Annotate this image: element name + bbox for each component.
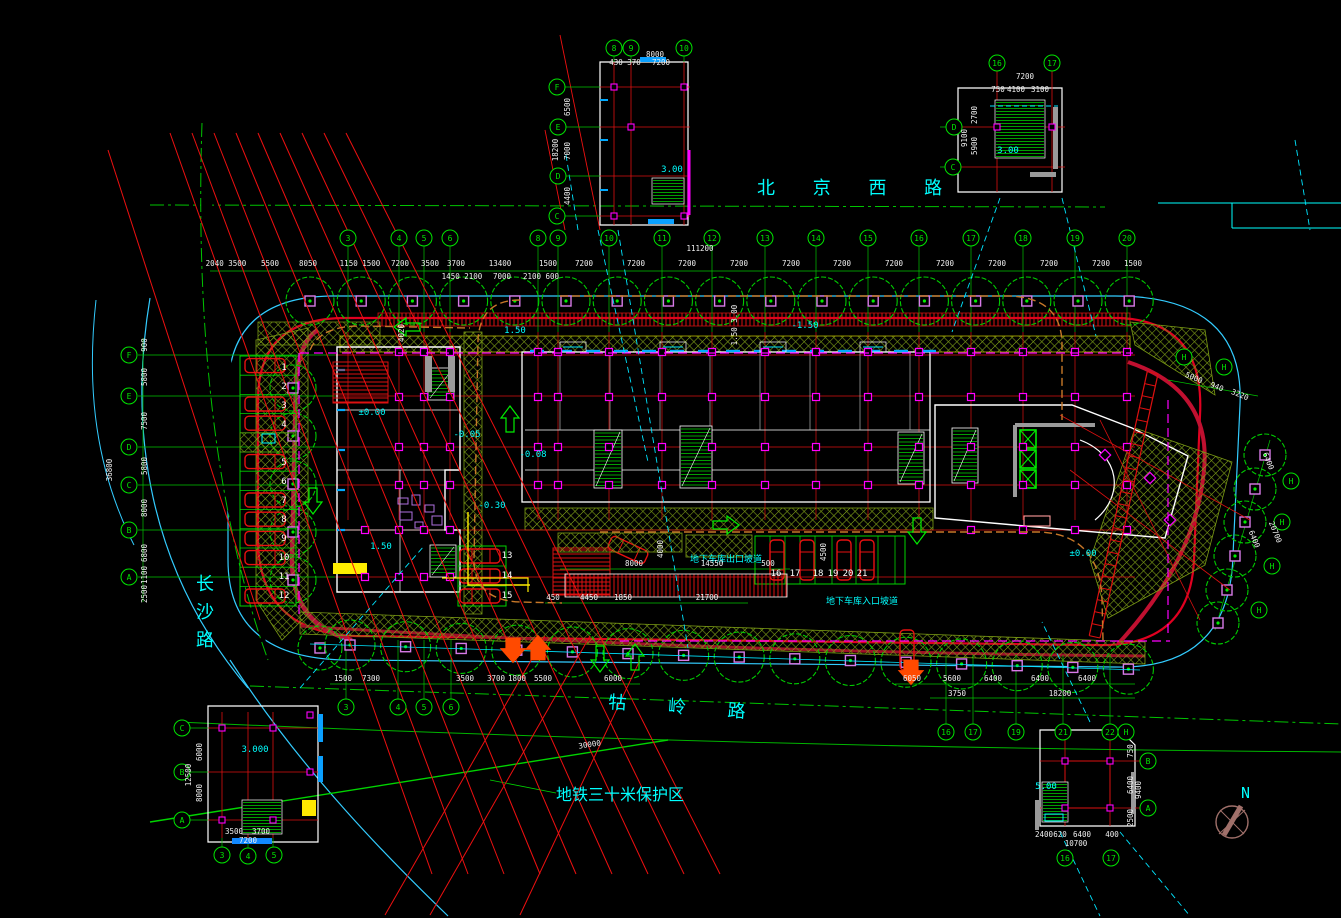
detail-column-square [307, 769, 313, 775]
dimension-text: 430 370 [609, 58, 641, 67]
grid-bubble-label: 22 [1105, 728, 1115, 737]
column-square [709, 394, 716, 401]
column-square [606, 349, 613, 356]
grid-bubble-label: H [1257, 606, 1262, 615]
column-square [968, 444, 975, 451]
dimension-text: 12500 [184, 763, 193, 786]
grid-bubble-label: 6 [448, 234, 453, 243]
column-square [659, 444, 666, 451]
grid-bubble-label: 11 [657, 234, 667, 243]
parking-number: 12 [279, 591, 290, 601]
furniture [425, 505, 434, 512]
grid-bubble-label: 5 [272, 851, 277, 860]
garage-entry-ramp-label: 地下车库入口坡道 [826, 595, 898, 607]
dimension-text: 7500 [140, 411, 149, 430]
detail-column-square [1107, 758, 1113, 764]
grid-bubble: B [1140, 753, 1156, 769]
dimension-text: 7200 [627, 259, 646, 268]
parking-number: 11 [279, 572, 290, 582]
column-square [659, 482, 666, 489]
grid-bubble-label: 16 [941, 728, 951, 737]
grid-bubble-label: H [1124, 728, 1129, 737]
parking-number: 7 [281, 496, 286, 506]
column-square [813, 444, 820, 451]
detail-column-square [1049, 124, 1055, 130]
grid-bubble-label: C [951, 163, 956, 172]
elevation-text: -1.50 [791, 321, 818, 331]
rect [648, 219, 674, 224]
column-square [1124, 444, 1131, 451]
dimension-text: 6800 [140, 543, 149, 562]
elevation-text: -0.05 [453, 430, 480, 440]
stair-core [898, 432, 924, 484]
dimension-text: 900 [140, 338, 149, 352]
grid-bubble: C [945, 159, 961, 175]
parking-number: 17 [790, 569, 801, 579]
parking-number: 13 [502, 551, 513, 561]
furniture [432, 516, 442, 525]
grid-bubble: 3 [340, 230, 356, 246]
dimension-text: 7200 [730, 259, 749, 268]
column-square [1072, 482, 1079, 489]
column-square [709, 482, 716, 489]
site-plan-svg: 北 京 西 路 长沙路 牯 岭 路 地铁三十米保护区 地下车库出口坡道 地下车库… [0, 0, 1341, 918]
parking-number: 16 [771, 569, 782, 579]
column-square [916, 349, 923, 356]
grid-bubble: H [1176, 349, 1192, 365]
stair-core [680, 426, 712, 488]
path [250, 686, 1341, 724]
dimension-text: 6400 [984, 674, 1003, 683]
grid-bubble: 6 [443, 699, 459, 715]
detail-column-square [681, 84, 687, 90]
road-name-west: 长沙路 [196, 574, 214, 651]
dimension-text: 620 [1053, 830, 1067, 839]
parking-number: 18 [813, 569, 824, 579]
hatch-court-strip [464, 332, 482, 614]
dimension-text: 7200 [1040, 259, 1059, 268]
grid-bubble: H [1283, 473, 1299, 489]
grid-bubble: H [1251, 602, 1267, 618]
grid-bubble-label: 5 [422, 234, 427, 243]
dimension-text: 6000 [195, 742, 204, 761]
grid-bubble: H [1216, 359, 1232, 375]
dimension-text: 5600 [943, 674, 962, 683]
slab-building-outline [522, 352, 930, 502]
grid-bubble: B [121, 522, 137, 538]
cad-drawing-canvas: 北 京 西 路 长沙路 牯 岭 路 地铁三十米保护区 地下车库出口坡道 地下车库… [0, 0, 1341, 918]
road-name-north: 北 京 西 路 [757, 178, 958, 199]
tree-center [318, 646, 321, 649]
dimension-text: 36800 [105, 458, 114, 481]
dimension-text: 8050 [299, 259, 318, 268]
ladder-rung [1089, 636, 1100, 638]
column-grey [448, 356, 455, 392]
dimension-text: 6400 [1078, 674, 1097, 683]
column-grey [425, 356, 432, 392]
dimension-text: 7200 [936, 259, 955, 268]
dimension-text: 1850 [614, 593, 633, 602]
column-square [1072, 349, 1079, 356]
column-square [535, 349, 542, 356]
column-square [421, 349, 428, 356]
dimension-text: 7200 [678, 259, 697, 268]
grid-bubble: 11 [654, 230, 670, 246]
dimension-text: 5800 [140, 367, 149, 386]
detail-column-square [270, 725, 276, 731]
furniture [400, 512, 412, 520]
pink-car [1024, 516, 1050, 526]
tree-center [872, 299, 875, 302]
detail-column-square [1062, 805, 1068, 811]
tree-center [1127, 668, 1130, 671]
tree [1206, 569, 1248, 611]
dimension-text: 1500 [539, 259, 558, 268]
parking-number: 21 [857, 569, 868, 579]
tree-center [462, 299, 465, 302]
stair-core [952, 428, 978, 483]
grid-bubble: 8 [606, 40, 622, 56]
column-square [421, 527, 428, 534]
tree-center [616, 299, 619, 302]
parking-number: 3 [281, 401, 286, 411]
rect [318, 756, 323, 782]
dimension-text: 9400 [1134, 780, 1143, 799]
column-square [865, 482, 872, 489]
grid-bubble-label: 17 [966, 234, 976, 243]
column-square [762, 349, 769, 356]
subway-zone-label: 地铁三十米保护区 [556, 785, 684, 804]
parking-number: 15 [502, 591, 513, 601]
grid-bubble: C [174, 720, 190, 736]
tree-center [1253, 487, 1256, 490]
dimension-text: 750 [1126, 744, 1135, 758]
grid-bubble-label: 12 [707, 234, 717, 243]
grid-bubble: E [550, 119, 566, 135]
dimension-text: 3700 [487, 674, 506, 683]
tree-center [1243, 520, 1246, 523]
grid-bubble-label: H [1222, 363, 1227, 372]
elevation-text: 1.50 [370, 542, 392, 552]
parking-number: 6 [281, 477, 286, 487]
grid-bubble-label: 10 [604, 234, 614, 243]
column-square [1020, 394, 1027, 401]
column-square [968, 394, 975, 401]
grid-bubble-label: C [555, 212, 560, 221]
tree-center [360, 299, 363, 302]
grid-bubble: 18 [1015, 230, 1031, 246]
stall-hatched [240, 433, 296, 452]
column-square [421, 574, 428, 581]
grid-bubble-label: H [1289, 477, 1294, 486]
grid-bubble-label: 13 [760, 234, 770, 243]
direction-arrow [591, 646, 609, 672]
grid-bubble: 5 [416, 699, 432, 715]
dimension-text: 7200 [1092, 259, 1111, 268]
elevation-text: ±0.00 [358, 408, 385, 418]
grid-bubble: 6 [442, 230, 458, 246]
grid-bubble: C [549, 208, 565, 224]
elevation-text: -0.30 [478, 501, 505, 511]
stair-core [594, 430, 622, 488]
grid-bubble: D [550, 168, 566, 184]
dimension-text: 10700 [1065, 839, 1088, 848]
column-square [362, 574, 369, 581]
parking-number: 14 [502, 571, 513, 581]
rect [1035, 800, 1039, 830]
dimension-text: 6400 [1073, 830, 1092, 839]
dimension-text: 9100 [960, 128, 969, 147]
dimension-text: 2400 [1035, 830, 1054, 839]
grid-bubble-label: 9 [556, 234, 561, 243]
elevation-text: 5.00 [1035, 782, 1057, 792]
grid-bubble-label: H [1270, 562, 1275, 571]
dimension-text: 7200 [1016, 72, 1035, 81]
grid-bubble: A [1140, 800, 1156, 816]
north-arrow-needle [1224, 806, 1241, 835]
tree-center [1128, 299, 1131, 302]
grid-bubble-label: D [127, 443, 132, 452]
layer-north-arrow [1216, 806, 1248, 838]
north-curb-rungs [378, 313, 1130, 326]
grid-bubble: 17 [1103, 850, 1119, 866]
column-square [916, 444, 923, 451]
column-square [916, 482, 923, 489]
column-square [968, 349, 975, 356]
dimension-text: 7200 [988, 259, 1007, 268]
column-square [1124, 349, 1131, 356]
detail-column-square [219, 817, 225, 823]
elevation-text: 3.000 [241, 745, 268, 755]
grid-bubble-label: 20 [1122, 234, 1132, 243]
dimension-text: 5800 [140, 456, 149, 475]
ladder-rung [1145, 384, 1156, 386]
detail-column-square [219, 725, 225, 731]
dimension-text: 5500 [261, 259, 280, 268]
detail-column-square [270, 817, 276, 823]
grid-bubble-label: 19 [1070, 234, 1080, 243]
grid-bubble: 19 [1067, 230, 1083, 246]
stair-core [430, 545, 456, 577]
dimension-text: 4000 [656, 539, 665, 558]
column-square [447, 349, 454, 356]
column-square [968, 482, 975, 489]
dimension-text: 7200 [575, 259, 594, 268]
dimension-text: 1150 1500 [340, 259, 381, 268]
column-square [1124, 394, 1131, 401]
grid-bubble: E [121, 388, 137, 404]
subway-line [108, 150, 260, 620]
dimension-text: 7200 [391, 259, 410, 268]
grid-bubble: D [121, 439, 137, 455]
grid-bubble-label: 5 [422, 703, 427, 712]
ladder-rung [1137, 420, 1148, 422]
dimension-text: 8000 [140, 498, 149, 517]
dimension-text: 3500 [421, 259, 440, 268]
southwest-curb [230, 660, 448, 916]
dimension-text: 13400 [489, 259, 512, 268]
column-square [606, 482, 613, 489]
tree [1197, 602, 1239, 644]
dimension-text: 3700 [447, 259, 466, 268]
column-square [1020, 444, 1027, 451]
tree-center [291, 530, 294, 533]
dimension-text: 6400 [1261, 451, 1276, 472]
grid-bubble-label: 16 [1060, 854, 1070, 863]
column-square [813, 349, 820, 356]
rect [652, 178, 684, 204]
dimension-text: 450 [546, 593, 560, 602]
tree-center [667, 299, 670, 302]
elevation-text: ±0.00 [1069, 549, 1096, 559]
furniture [398, 498, 408, 504]
subway-line [170, 133, 432, 874]
grid-bubble-label: 10 [679, 44, 689, 53]
column-square [709, 349, 716, 356]
column-square [1072, 394, 1079, 401]
dimension-text: 8000 [195, 783, 204, 802]
dimension-text: 6000 [604, 674, 623, 683]
parking-number: 5 [281, 458, 286, 468]
column-square [555, 482, 562, 489]
column-square [396, 482, 403, 489]
parking-number: 2 [281, 382, 286, 392]
elevation-text: 3.00 [997, 146, 1019, 156]
parking-number: 10 [279, 553, 290, 563]
column-square [1099, 449, 1110, 460]
grid-bubble: 19 [1008, 724, 1024, 740]
dimension-text: 1800 [508, 674, 527, 683]
grid-bubble-label: A [127, 573, 132, 582]
column-square [865, 444, 872, 451]
grid-bubble: 9 [623, 40, 639, 56]
column-square [762, 444, 769, 451]
column-square [762, 482, 769, 489]
grid-bubble-label: 15 [863, 234, 873, 243]
grid-bubble: 16 [911, 230, 927, 246]
column-square [555, 349, 562, 356]
dimension-text: 4500 [819, 542, 828, 561]
tree-center [960, 662, 963, 665]
dimension-text: 500 [761, 559, 775, 568]
detail-column-square [1062, 758, 1068, 764]
dimension-text: 7200 [239, 836, 258, 845]
tree-center [1071, 666, 1074, 669]
grid-bubble: 21 [1055, 724, 1071, 740]
parking-number: 1 [281, 363, 286, 373]
grid-bubble-label: A [1146, 804, 1151, 813]
grid-bubble-label: D [952, 123, 957, 132]
column-square [535, 394, 542, 401]
parking-number: 8 [281, 515, 286, 525]
column-square [555, 394, 562, 401]
grid-bubble-label: D [556, 172, 561, 181]
dimension-text: 3750 [948, 689, 967, 698]
dimension-text: 2040 3500 [206, 259, 247, 268]
grid-bubble: 5 [416, 230, 432, 246]
south-road-edge [178, 722, 1341, 752]
grid-bubble: 16 [938, 724, 954, 740]
dimension-text: 6050 [903, 674, 922, 683]
grid-bubble: 17 [1044, 55, 1060, 71]
dimension-text: 7200 [652, 58, 671, 67]
rect [1030, 172, 1056, 177]
column-square [362, 527, 369, 534]
grid-bubble-label: F [555, 83, 560, 92]
dimension-text: 6400 [1031, 674, 1050, 683]
dimension-text: 21700 [696, 593, 719, 602]
grid-bubble: 20 [1119, 230, 1135, 246]
tree-center [1216, 621, 1219, 624]
dimension-text: 1.50 3.00 [730, 304, 739, 345]
grid-bubble-label: C [180, 724, 185, 733]
dimension-text: 3100 [1031, 85, 1050, 94]
grid-bubble: F [549, 79, 565, 95]
grid-bubble-label: F [127, 351, 132, 360]
tree-center [820, 299, 823, 302]
dimension-text: 6500 [563, 97, 572, 116]
column-square [1072, 444, 1079, 451]
grid-bubble: 16 [1057, 850, 1073, 866]
tree-center [1016, 664, 1019, 667]
dimension-text: 3700 [252, 827, 271, 836]
tree-center [923, 299, 926, 302]
grid-bubble-label: C [127, 481, 132, 490]
grid-bubble: 4 [240, 848, 256, 864]
yellow-block [333, 563, 367, 574]
grid-bubble-label: 17 [1106, 854, 1116, 863]
ladder-rung [1142, 396, 1153, 398]
dimension-text: 7200 [885, 259, 904, 268]
detail-column-square [611, 84, 617, 90]
tree-center [411, 299, 414, 302]
hatch-ramp-island [686, 535, 752, 557]
column-square [659, 349, 666, 356]
column-square [396, 444, 403, 451]
dimension-text: 400 [1105, 830, 1119, 839]
dimension-text: 7000 [563, 141, 572, 160]
column-square [606, 394, 613, 401]
grid-bubble-label: 17 [968, 728, 978, 737]
parking-number: 9 [281, 534, 286, 544]
detail-column-square [611, 213, 617, 219]
grid-bubble-label: 4 [246, 852, 251, 861]
column-square [606, 444, 613, 451]
dimension-text: 2500 [1126, 808, 1135, 827]
column-square [555, 444, 562, 451]
column-square [813, 394, 820, 401]
detail-leader-dash [1120, 832, 1190, 916]
grid-bubble: 10 [676, 40, 692, 56]
rect [318, 714, 323, 742]
dimension-text: 2500 [140, 584, 149, 603]
grid-bubble: F [121, 347, 137, 363]
detail-stair [652, 178, 684, 204]
tree-center [718, 299, 721, 302]
dimension-text: 5500 [534, 674, 553, 683]
grid-bubble-label: 17 [1047, 59, 1057, 68]
grid-bubble-label: B [1146, 757, 1151, 766]
tree-center [308, 299, 311, 302]
west-road-curb2 [92, 300, 134, 545]
dimension-text: 1100 [140, 565, 149, 584]
grid-bubble: 8 [530, 230, 546, 246]
ramp-block [333, 362, 388, 403]
ladder-rung [1092, 624, 1103, 626]
grid-bubble-label: 8 [612, 44, 617, 53]
grid-bubble-label: 16 [992, 59, 1002, 68]
detail-column-square [681, 213, 687, 219]
